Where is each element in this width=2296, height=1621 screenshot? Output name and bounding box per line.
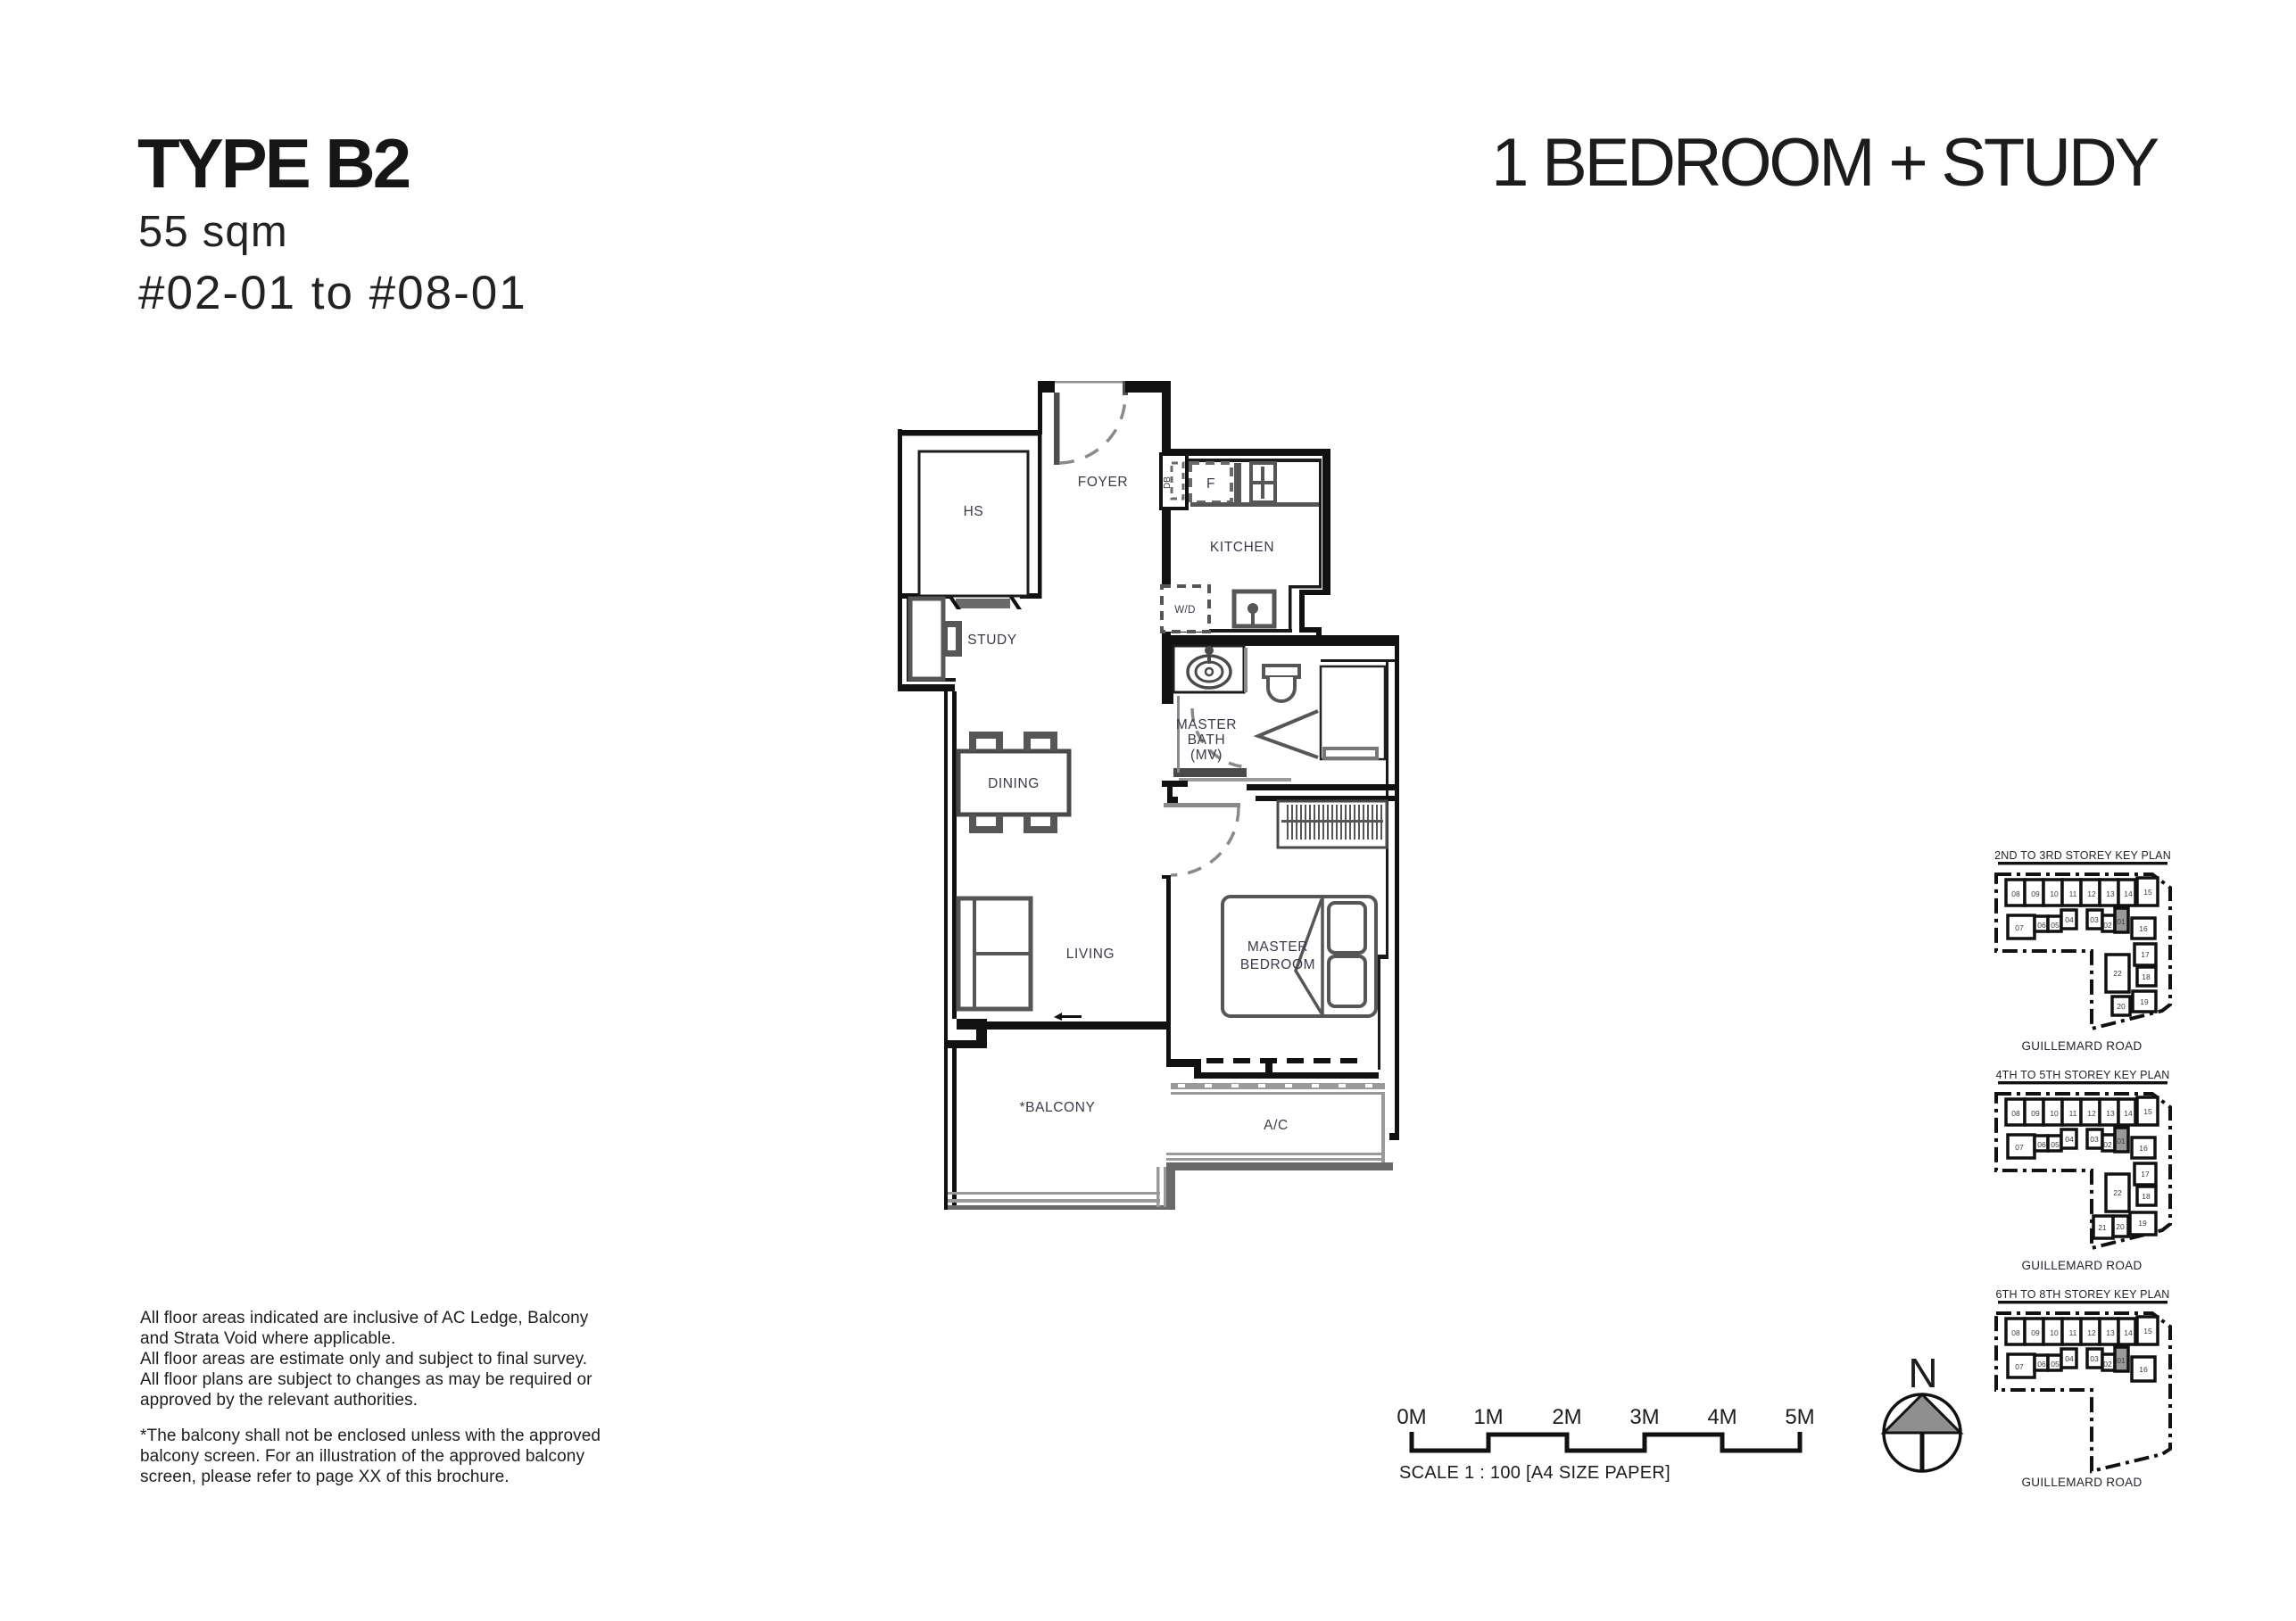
svg-text:22: 22 — [2113, 1188, 2122, 1197]
svg-text:W/D: W/D — [1174, 605, 1196, 616]
svg-text:20: 20 — [2117, 1002, 2126, 1011]
svg-text:LIVING: LIVING — [1066, 947, 1115, 962]
svg-text:21: 21 — [2098, 1223, 2107, 1232]
svg-text:All floor plans are subject to: All floor plans are subject to changes a… — [140, 1370, 593, 1389]
svg-text:GUILLEMARD ROAD: GUILLEMARD ROAD — [2021, 1039, 2142, 1053]
svg-text:2ND TO 3RD STOREY KEY PLAN: 2ND TO 3RD STOREY KEY PLAN — [1994, 849, 2171, 862]
svg-text:3M: 3M — [1629, 1405, 1659, 1429]
svg-text:and Strata Void where applicab: and Strata Void where applicable. — [140, 1329, 395, 1348]
svg-text:KITCHEN: KITCHEN — [1210, 540, 1274, 555]
svg-text:*BALCONY: *BALCONY — [1020, 1100, 1096, 1115]
svg-text:N: N — [1908, 1350, 1937, 1396]
svg-text:DINING: DINING — [988, 776, 1040, 791]
svg-text:DB: DB — [1163, 476, 1173, 489]
svg-text:GUILLEMARD ROAD: GUILLEMARD ROAD — [2021, 1259, 2142, 1272]
svg-text:#02-01 to #08-01: #02-01 to #08-01 — [138, 267, 527, 319]
svg-text:1M: 1M — [1473, 1405, 1503, 1429]
svg-text:2M: 2M — [1552, 1405, 1581, 1429]
svg-text:16: 16 — [2139, 924, 2148, 933]
svg-text:20: 20 — [2116, 1222, 2125, 1231]
svg-text:MASTER: MASTER — [1247, 939, 1308, 955]
svg-text:22: 22 — [2113, 969, 2122, 978]
svg-text:F: F — [1206, 476, 1215, 492]
svg-text:55 sqm: 55 sqm — [138, 208, 288, 256]
svg-text:19: 19 — [2138, 1219, 2147, 1228]
svg-text:18: 18 — [2142, 972, 2151, 981]
svg-text:BEDROOM: BEDROOM — [1240, 957, 1315, 972]
svg-text:*The balcony shall not be encl: *The balcony shall not be enclosed unles… — [140, 1427, 601, 1445]
svg-text:(MV): (MV) — [1190, 748, 1223, 763]
svg-text:17: 17 — [2141, 950, 2150, 959]
svg-text:4TH TO 5TH STOREY KEY PLAN: 4TH TO 5TH STOREY KEY PLAN — [1995, 1069, 2169, 1081]
svg-text:0M: 0M — [1397, 1405, 1426, 1429]
svg-text:All floor areas are estimate o: All floor areas are estimate only and su… — [140, 1350, 587, 1369]
svg-text:4M: 4M — [1707, 1405, 1737, 1429]
svg-text:6TH TO 8TH STOREY KEY PLAN: 6TH TO 8TH STOREY KEY PLAN — [1995, 1288, 2169, 1301]
svg-text:HS: HS — [964, 504, 984, 519]
svg-text:TYPE B2: TYPE B2 — [137, 124, 410, 203]
svg-text:GUILLEMARD ROAD: GUILLEMARD ROAD — [2021, 1476, 2142, 1489]
svg-text:balcony screen. For an illustr: balcony screen. For an illustration of t… — [140, 1447, 584, 1466]
svg-text:5M: 5M — [1785, 1405, 1814, 1429]
svg-text:STUDY: STUDY — [967, 633, 1017, 648]
svg-text:screen, please refer to page X: screen, please refer to page XX of this … — [140, 1468, 510, 1486]
svg-text:16: 16 — [2139, 1144, 2148, 1153]
svg-text:MASTER: MASTER — [1176, 717, 1237, 732]
svg-text:A/C: A/C — [1264, 1118, 1289, 1133]
svg-text:FOYER: FOYER — [1078, 475, 1128, 490]
svg-text:16: 16 — [2139, 1365, 2148, 1374]
svg-text:1 BEDROOM + STUDY: 1 BEDROOM + STUDY — [1491, 125, 2159, 201]
svg-text:All floor areas indicated are: All floor areas indicated are inclusive … — [140, 1309, 589, 1327]
svg-text:19: 19 — [2140, 997, 2149, 1006]
svg-text:SCALE 1 : 100 [A4 SIZE PAPER: SCALE 1 : 100 [A4 SIZE PAPER] — [1399, 1463, 1670, 1483]
svg-text:BATH: BATH — [1188, 732, 1226, 748]
svg-text:18: 18 — [2142, 1192, 2151, 1201]
svg-text:approved by the relevant autho: approved by the relevant authorities. — [140, 1391, 418, 1410]
svg-text:17: 17 — [2141, 1170, 2150, 1179]
